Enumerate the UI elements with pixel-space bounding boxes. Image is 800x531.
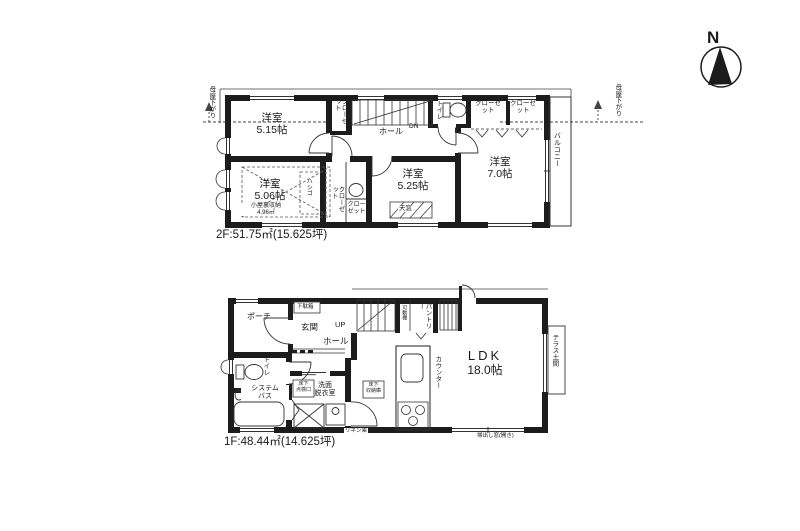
floor-plan-graphic: [0, 0, 800, 531]
stairs-down-label: DN: [409, 123, 418, 130]
toilet-1f-label: トイレ: [261, 356, 268, 382]
closet-2f-c-label: クローゼット: [472, 100, 504, 115]
room-name: 洋室: [238, 179, 302, 191]
underfloor-storage-label: 床下 収納庫: [363, 383, 384, 394]
room-size: 7.0帖: [470, 169, 530, 181]
balcony-label: バルコニー: [553, 132, 560, 202]
room-size: 5.15帖: [240, 125, 304, 137]
moya-sagari-left-label: 母屋下がり: [207, 86, 214, 130]
room-2f-515-label: 洋室 5.15帖: [240, 113, 304, 137]
closet-2f-top-label: クローゼット: [330, 98, 346, 128]
stairs-1f: [357, 300, 395, 331]
stairs-2f: [352, 100, 432, 125]
kitchen-icon: [396, 346, 430, 430]
counter-label: カウンター: [433, 356, 440, 402]
basin-icon-2f: [349, 184, 363, 197]
closet-2f-d-label: クローゼット: [507, 100, 539, 115]
hanger-symbols: [471, 129, 542, 137]
compass-n-label: N: [707, 28, 719, 47]
pantry-label: パントリー: [412, 303, 430, 331]
room-2f-70-label: 洋室 7.0帖: [470, 157, 530, 181]
entrance-label: 玄関: [301, 323, 318, 333]
moya-sagari-right-label: 母屋下がり: [613, 84, 620, 128]
attic-storage-label: 小屋裏収納 4.96㎡: [238, 203, 294, 216]
shoe-cabinet-label: 下駄箱: [297, 304, 314, 310]
back-door-leaf: [459, 286, 462, 298]
room-2f-506-label: 洋室 5.06帖: [238, 179, 302, 203]
ldk-label: LDK 18.0帖: [450, 349, 520, 377]
closet-2f-mid-label: クローゼット: [327, 186, 343, 218]
stairs-up-label: UP: [335, 321, 345, 329]
floor2-caption: 2F:51.75㎡(15.625坪): [216, 229, 327, 242]
genkan-step: [292, 349, 345, 353]
room-name: 洋室: [383, 169, 443, 181]
skylight-label: 天窓: [398, 205, 413, 212]
linen-closet-label: リネン庫: [344, 428, 368, 434]
hall-2f-label: ホール: [379, 128, 403, 137]
room-size: 5.25帖: [383, 181, 443, 193]
hall-1f-label: ホール: [323, 337, 349, 347]
toilet-2f-label: トイレ: [434, 100, 441, 124]
toilet-icon-1f: [236, 365, 263, 380]
room-name: 洋室: [240, 113, 304, 125]
underfloor-check-label: 床下 点検口: [293, 382, 314, 393]
room-name: 洋室: [470, 157, 530, 169]
porch-label: ポーチ: [230, 313, 288, 322]
floor-plan-page: N 母屋下がり 母屋下がり 洋室 5.15帖 洋室 5.06帖 小屋裏収納 4.…: [0, 0, 800, 531]
room-size: 5.06帖: [238, 191, 302, 203]
ladder-label: ハシゴ: [305, 178, 311, 210]
window-note-label: 掃出し窓(開き): [476, 433, 515, 439]
closet-2f-small-label: クローゼット: [346, 202, 367, 215]
room-2f-525-label: 洋室 5.25帖: [383, 169, 443, 193]
bath-label: システム バス: [241, 385, 289, 401]
moya-arrow-right: [594, 100, 602, 109]
toilet-icon-2f: [443, 103, 466, 117]
vanity-icon: [326, 404, 345, 425]
washer-icon: [294, 404, 324, 428]
terrace-label: テラス土間: [550, 334, 557, 394]
shelf-label: 可動棚: [401, 305, 406, 331]
compass-icon: [701, 47, 741, 87]
floor1-caption: 1F:48.44㎡(14.625坪): [224, 436, 335, 449]
